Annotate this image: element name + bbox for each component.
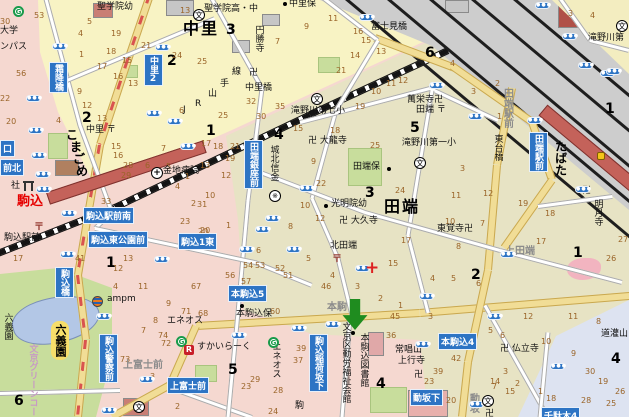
lot-number: 8 bbox=[288, 222, 293, 231]
lot-number: 2 bbox=[495, 79, 500, 88]
lot-number: 71 bbox=[181, 307, 191, 316]
bus-stop-icon: ●●● bbox=[36, 186, 51, 193]
lot-number: 22 bbox=[0, 94, 10, 103]
lot-number: 28 bbox=[581, 396, 591, 405]
lot-number: 5 bbox=[87, 17, 92, 26]
bus-stop-icon: ●●● bbox=[578, 62, 593, 69]
lot-number: 10 bbox=[371, 87, 381, 96]
place-label: 文京区勤労福祉会館 bbox=[340, 322, 349, 403]
bus-stop-icon: ●●● bbox=[535, 2, 550, 9]
train-icon bbox=[597, 152, 605, 160]
place-label: エネオス bbox=[167, 317, 203, 326]
lot-number: 20 bbox=[6, 117, 16, 126]
lot-number: 33 bbox=[101, 197, 111, 206]
subway-entrance-icon: G bbox=[13, 6, 24, 17]
lot-number: 4 bbox=[78, 29, 83, 38]
bus-stop-sign: 前北 bbox=[0, 159, 24, 176]
bus-stop-icon: ●●● bbox=[231, 332, 246, 339]
lot-number: 37 bbox=[293, 356, 303, 365]
bus-stop-icon: ●●● bbox=[468, 113, 483, 120]
district-tabata: 田端 bbox=[384, 199, 420, 216]
lot-number: 51 bbox=[283, 271, 293, 280]
station-hira-tabata: たばた bbox=[554, 140, 567, 176]
place-label: 線 bbox=[232, 68, 241, 77]
subway-entrance-icon: G bbox=[268, 337, 279, 348]
lot-number: 5 bbox=[451, 274, 456, 283]
bus-stop-icon: ●●● bbox=[325, 321, 340, 328]
place-label: J bbox=[183, 106, 186, 115]
lot-number: 24 bbox=[395, 186, 405, 195]
lot-number: 1 bbox=[79, 50, 84, 59]
lot-number: 53 bbox=[255, 261, 265, 270]
place-label: 駒込駅前 bbox=[4, 234, 40, 243]
block-number: 6 bbox=[14, 393, 24, 409]
lot-number: 15 bbox=[505, 387, 515, 396]
lot-number: 56 bbox=[225, 271, 235, 280]
lot-number: 17 bbox=[401, 236, 411, 245]
lot-number: 12 bbox=[523, 312, 533, 321]
bus-stop-icon: ●●● bbox=[167, 118, 182, 125]
lot-number: 4 bbox=[590, 11, 595, 20]
lot-number: 1 bbox=[226, 221, 231, 230]
place-label: 城北信金 bbox=[268, 145, 277, 181]
block-number: 4 bbox=[611, 351, 621, 367]
place-label: 聖学院幼 bbox=[97, 3, 133, 12]
lot-number: 11 bbox=[386, 79, 396, 88]
lot-number: 24 bbox=[268, 407, 278, 416]
lot-number: 23 bbox=[424, 377, 434, 386]
bus-stop-icon: ●●● bbox=[550, 363, 565, 370]
block-number: 1 bbox=[206, 123, 216, 139]
lot-number: 21 bbox=[230, 142, 240, 151]
convenience-store-icon bbox=[92, 296, 103, 307]
bus-stop-icon: ●●● bbox=[26, 95, 41, 102]
bus-stop-sign: 駒込駅前南 bbox=[83, 207, 134, 224]
place-label: 東台橋 bbox=[492, 134, 501, 161]
lot-number: 30 bbox=[585, 367, 595, 376]
lot-number: 8 bbox=[153, 316, 158, 325]
bus-stop-icon: ●●● bbox=[52, 43, 67, 50]
bus-stop-icon: ●●● bbox=[606, 68, 621, 75]
lot-number: 29 bbox=[250, 375, 260, 384]
lot-number: 6 bbox=[476, 279, 481, 288]
bus-stop-icon: ●●● bbox=[527, 117, 542, 124]
bus-stop-icon: ●●● bbox=[500, 251, 515, 258]
block-number: 1 bbox=[573, 245, 583, 261]
bus-stop-icon: ●●● bbox=[291, 325, 306, 332]
place-label: 東覚寺卍 bbox=[437, 225, 473, 234]
bus-stop-icon: ●●● bbox=[299, 185, 314, 192]
lot-number: 53 bbox=[34, 11, 44, 20]
lot-number: 9 bbox=[77, 87, 82, 96]
bus-stop-icon: ●●● bbox=[265, 215, 280, 222]
facility-dot bbox=[240, 304, 244, 308]
bus-stop-sign: 駒込稲荷坂下 bbox=[309, 334, 328, 392]
place-label: 六義園 bbox=[2, 313, 11, 340]
lot-number: 26 bbox=[606, 254, 616, 263]
lot-number: 25 bbox=[370, 141, 380, 150]
lot-number: 16 bbox=[113, 151, 123, 160]
place-label: 手 bbox=[220, 80, 229, 89]
lot-number: 17 bbox=[536, 237, 546, 246]
lot-number: 67 bbox=[191, 282, 201, 291]
lot-number: 23 bbox=[180, 217, 190, 226]
lot-number: 4 bbox=[56, 116, 61, 125]
school-icon: 文 bbox=[616, 20, 628, 32]
lot-number: 4 bbox=[450, 59, 455, 68]
block-number: 4 bbox=[274, 127, 284, 143]
map-canvas[interactable]: 中里田端駒込こまごめたばた中里2霜降橋駒込橋駒込警察前田端銀座前田端駅前駒込稲荷… bbox=[0, 0, 629, 417]
lot-number: 18 bbox=[106, 47, 116, 56]
place-label: 金地病院 bbox=[163, 167, 199, 176]
lot-number: 15 bbox=[111, 142, 121, 151]
lot-number: 32 bbox=[246, 97, 256, 106]
lot-number: 15 bbox=[361, 36, 371, 45]
bus-stop-icon: ●●● bbox=[101, 407, 116, 414]
lot-number: 19 bbox=[225, 154, 235, 163]
school-icon: 文 bbox=[482, 395, 494, 407]
place-label: R bbox=[195, 100, 201, 109]
bus-stop-sign: 駒込警察前 bbox=[99, 334, 118, 383]
lot-number: 5 bbox=[306, 254, 311, 263]
lot-number: 18 bbox=[545, 209, 555, 218]
road-name-label: 上富士前 bbox=[123, 361, 163, 372]
lot-number: 19 bbox=[111, 29, 121, 38]
bus-stop-sign: 田端駅前 bbox=[529, 132, 548, 172]
place-label: 卍 bbox=[414, 371, 423, 380]
lot-number: 28 bbox=[123, 161, 133, 170]
school-icon: 文 bbox=[193, 9, 205, 21]
place-label: 道灌山 bbox=[601, 330, 628, 339]
lot-number: 9 bbox=[571, 349, 576, 358]
lot-number: 30 bbox=[0, 17, 10, 26]
lot-number: 24 bbox=[172, 51, 182, 60]
lot-number: 15 bbox=[293, 124, 303, 133]
place-label: 円勝寺 bbox=[253, 25, 262, 52]
block-number: 5 bbox=[228, 362, 238, 378]
place-label: ンパス bbox=[0, 43, 27, 52]
lot-number: 28 bbox=[273, 386, 283, 395]
lot-number: 3 bbox=[428, 312, 433, 321]
place-label: 滝野川第七小 bbox=[291, 107, 345, 116]
lot-number: 10 bbox=[300, 201, 310, 210]
lot-number: 72 bbox=[161, 339, 171, 348]
bus-stop-icon: ●●● bbox=[429, 82, 444, 89]
place-label: 本駒込保 bbox=[236, 310, 272, 319]
lot-number: 31 bbox=[197, 200, 207, 209]
bus-stop-icon: ●●● bbox=[35, 171, 50, 178]
lot-number: 6 bbox=[500, 331, 505, 340]
course-label: 文京グリーンコース bbox=[27, 344, 36, 417]
lot-number: 12 bbox=[483, 189, 493, 198]
bus-stop-sign: 動坂下 bbox=[410, 389, 443, 406]
block-number: 3 bbox=[226, 22, 236, 38]
lot-number: 3 bbox=[460, 164, 465, 173]
school-icon: 文 bbox=[414, 157, 426, 169]
place-label: すかいらーく bbox=[197, 343, 251, 352]
bus-stop-sign: 中里2 bbox=[144, 54, 163, 86]
shinkin-bank-icon: ※ bbox=[269, 190, 281, 202]
building bbox=[262, 14, 280, 26]
lot-number: 13 bbox=[123, 254, 133, 263]
bus-stop-sign: 本駒込4 bbox=[438, 333, 477, 350]
lot-number: 19 bbox=[518, 199, 528, 208]
lot-number: 46 bbox=[321, 282, 331, 291]
lot-number: 11 bbox=[328, 14, 338, 23]
facility-dot bbox=[351, 331, 355, 335]
bus-stop-icon: ●●● bbox=[60, 251, 75, 258]
lot-number: 2 bbox=[175, 402, 180, 411]
lot-number: 2 bbox=[378, 294, 383, 303]
lot-number: 17 bbox=[201, 139, 211, 148]
lot-number: 9 bbox=[311, 157, 316, 166]
place-label: 大学 bbox=[0, 27, 18, 36]
lot-number: 42 bbox=[451, 354, 461, 363]
block-number: 1 bbox=[605, 101, 615, 117]
lot-number: 8 bbox=[456, 242, 461, 251]
bus-stop-icon: ●●● bbox=[155, 44, 170, 51]
torii-shrine-icon bbox=[23, 181, 34, 190]
place-label: 本駒込図書館 bbox=[358, 333, 367, 387]
bus-stop-sign: 駒込東公園前 bbox=[88, 231, 148, 248]
lot-number: 11 bbox=[138, 282, 148, 291]
lot-number: 27 bbox=[618, 235, 628, 244]
lot-number: 3 bbox=[568, 9, 573, 18]
clinic-cross-icon: + bbox=[365, 260, 379, 277]
lot-number: 39 bbox=[433, 367, 443, 376]
place-label: 卍 仏立寺 bbox=[500, 345, 539, 354]
block-number: 6 bbox=[425, 45, 435, 61]
road-name-label: 田端駅前 bbox=[501, 88, 512, 128]
lot-number: 20 bbox=[446, 396, 456, 405]
lot-number: 19 bbox=[355, 102, 365, 111]
bus-stop-sign: 本駒込5 bbox=[228, 285, 267, 302]
park-name-pill: 六義園 bbox=[51, 321, 69, 360]
lot-number: 2 bbox=[515, 379, 520, 388]
lot-number: 4 bbox=[113, 282, 118, 291]
lot-number: 7 bbox=[141, 326, 146, 335]
lot-number: 54 bbox=[243, 261, 253, 270]
lot-number: 16 bbox=[353, 27, 363, 36]
lot-number: 11 bbox=[451, 191, 461, 200]
building bbox=[368, 332, 384, 356]
place-label: 北田端 bbox=[330, 242, 357, 251]
lot-number: 30 bbox=[256, 112, 266, 121]
lot-number: 36 bbox=[386, 331, 396, 340]
lot-number: 6 bbox=[256, 246, 261, 255]
lot-number: 12 bbox=[82, 101, 92, 110]
lot-number: 3 bbox=[471, 87, 476, 96]
lot-number: 5 bbox=[488, 326, 493, 335]
lot-number: 14 bbox=[350, 51, 360, 60]
lot-number: 13 bbox=[200, 161, 210, 170]
bus-stop-icon: ●●● bbox=[28, 127, 43, 134]
place-label: 滝野川第一小 bbox=[402, 139, 456, 148]
lot-number: 16 bbox=[113, 72, 123, 81]
lot-number: 2 bbox=[191, 199, 196, 208]
bus-stop-sign: 駒込1東 bbox=[178, 233, 217, 250]
school-icon: 文 bbox=[133, 401, 145, 413]
lot-number: 15 bbox=[388, 259, 398, 268]
lot-number: 25 bbox=[218, 111, 228, 120]
lot-number: 45 bbox=[390, 312, 400, 321]
place-label: 卍 大龍寺 bbox=[308, 137, 347, 146]
place-label: 田端 〒 bbox=[416, 106, 446, 115]
place-label: 中里保 bbox=[289, 0, 316, 9]
lot-number: 39 bbox=[296, 344, 306, 353]
lot-number: 6 bbox=[145, 161, 150, 170]
road-name-label: 本駒 bbox=[327, 303, 347, 314]
bus-stop-icon: ●●● bbox=[96, 313, 111, 320]
place-label: 駒 bbox=[295, 402, 304, 411]
lot-number: 4 bbox=[430, 274, 435, 283]
lot-number: 18 bbox=[213, 142, 223, 151]
lot-number: 23 bbox=[241, 382, 251, 391]
place-label: 卍 bbox=[485, 410, 494, 417]
bus-stop-icon: ●●● bbox=[415, 341, 430, 348]
lot-number: 13 bbox=[180, 6, 190, 15]
lot-number: 9 bbox=[166, 299, 171, 308]
lot-number: 18 bbox=[546, 394, 556, 403]
restaurant-icon: R bbox=[184, 345, 194, 355]
station-hira-komagome-4: め bbox=[76, 165, 88, 178]
lot-number: 25 bbox=[197, 57, 207, 66]
lot-number: 9 bbox=[304, 22, 309, 31]
bus-stop-icon: ●●● bbox=[61, 210, 76, 217]
bus-stop-icon: ●●● bbox=[562, 33, 577, 40]
lot-number: 3 bbox=[355, 282, 360, 291]
bus-stop-icon: ●●● bbox=[487, 313, 502, 320]
lot-number: 10 bbox=[541, 337, 551, 346]
place-label: 卍 bbox=[249, 69, 258, 78]
bus-stop-sign: 千駄木4 bbox=[541, 407, 580, 417]
block-number: 4 bbox=[376, 376, 386, 392]
lot-number: 3 bbox=[503, 367, 508, 376]
facility-dot bbox=[387, 167, 391, 171]
lot-number: 21 bbox=[336, 66, 346, 75]
place-label: 富士見橋 bbox=[371, 23, 407, 32]
bus-stop-sign: 上富士前 bbox=[167, 377, 209, 394]
lot-number: 13 bbox=[376, 47, 386, 56]
lot-number: 12 bbox=[113, 264, 123, 273]
school-icon: 文 bbox=[311, 93, 323, 105]
lot-number: 35 bbox=[275, 102, 285, 111]
lot-number: 1 bbox=[538, 387, 543, 396]
lot-number: 7 bbox=[275, 37, 280, 46]
post-office-mark: 〒 bbox=[34, 223, 44, 234]
lot-number: 11 bbox=[568, 312, 578, 321]
lot-number: 4 bbox=[330, 271, 335, 280]
building bbox=[445, 0, 469, 13]
lot-number: 19 bbox=[598, 377, 608, 386]
lot-number: 13 bbox=[97, 114, 107, 123]
place-label: 滝野川第 bbox=[588, 34, 624, 43]
lot-number: 17 bbox=[13, 254, 23, 263]
lot-number: 21 bbox=[141, 41, 151, 50]
place-label: 中里橋 bbox=[245, 84, 272, 93]
bus-stop-icon: ●●● bbox=[31, 152, 46, 159]
lot-number: 7 bbox=[492, 382, 497, 391]
bus-stop-icon: ●●● bbox=[180, 143, 195, 150]
post-office-mark: 〒 bbox=[332, 255, 342, 266]
facility-dot bbox=[283, 2, 287, 6]
bus-stop-icon: ●●● bbox=[255, 226, 270, 233]
lot-number: 12 bbox=[221, 171, 231, 180]
block-number: 2 bbox=[82, 110, 92, 126]
lot-number: 12 bbox=[315, 214, 325, 223]
lot-number: 1 bbox=[398, 301, 403, 310]
place-label: 上行寺 bbox=[398, 357, 425, 366]
place-label: 中里 〒 bbox=[86, 126, 116, 135]
bus-stop-icon: ●●● bbox=[359, 14, 374, 21]
bus-stop-sign: 駒込橋 bbox=[55, 267, 74, 298]
bus-stop-icon: ●●● bbox=[139, 376, 154, 383]
block-number: 5 bbox=[410, 120, 420, 136]
place-label: 田端保 bbox=[353, 163, 380, 172]
place-label: 卍 大久寺 bbox=[339, 217, 378, 226]
lot-number: 7 bbox=[480, 219, 485, 228]
lot-number: 25 bbox=[606, 399, 616, 408]
lot-number: 13 bbox=[128, 79, 138, 88]
place-label: 社 bbox=[11, 182, 20, 191]
place-label: 明月寺 bbox=[592, 199, 601, 226]
lot-number: 18 bbox=[330, 126, 340, 135]
bus-stop-icon: ●●● bbox=[154, 256, 169, 263]
place-label: 光明院幼 bbox=[331, 200, 367, 209]
bus-stop-sign: 霜降橋 bbox=[49, 62, 68, 93]
lot-number: 12 bbox=[398, 76, 408, 85]
lot-number: 7 bbox=[161, 144, 166, 153]
lot-number: 29 bbox=[121, 171, 131, 180]
lot-number: 17 bbox=[97, 62, 107, 71]
facility-dot bbox=[324, 204, 328, 208]
lot-number: 22 bbox=[316, 179, 326, 188]
park-block bbox=[48, 133, 68, 159]
bus-stop-icon: ●●● bbox=[239, 246, 254, 253]
place-label: ampm bbox=[107, 295, 136, 304]
place-label: 山 bbox=[208, 90, 217, 99]
lot-number: 8 bbox=[596, 317, 601, 326]
lot-number: 56 bbox=[16, 69, 26, 78]
lot-number: 10 bbox=[205, 191, 215, 200]
bus-stop-icon: ●●● bbox=[286, 246, 301, 253]
bus-stop-icon: ●●● bbox=[419, 293, 434, 300]
lot-number: 15 bbox=[122, 56, 132, 65]
lot-number: 4 bbox=[175, 182, 180, 191]
hospital-icon: + bbox=[151, 167, 163, 179]
lot-number: 26 bbox=[615, 387, 625, 396]
bus-stop-icon: ●●● bbox=[146, 110, 161, 117]
bus-stop-icon: ●●● bbox=[575, 186, 590, 193]
district-nakazato: 中里 bbox=[183, 21, 219, 38]
station-name-komagome: 駒込 bbox=[17, 195, 43, 209]
place-label: 聖学院高・中 bbox=[204, 5, 258, 14]
bus-stop-sign: 田端銀座前 bbox=[244, 140, 263, 189]
bus-stop-sign: 口 bbox=[0, 140, 15, 157]
